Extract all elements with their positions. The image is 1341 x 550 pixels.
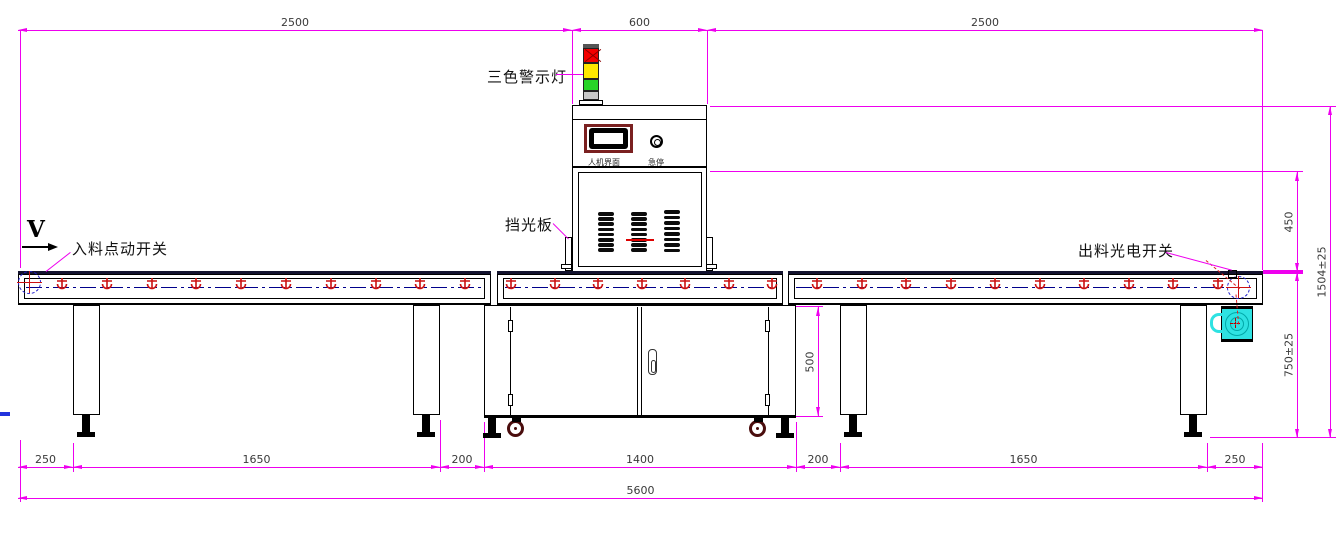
extension-line [73,443,74,472]
extension-line [796,416,823,417]
cabinet-foot [483,416,501,438]
dim-value: 250 [35,453,56,466]
door-hinge [508,320,513,332]
conveyor-leg [840,305,867,415]
roller-icon [548,276,562,290]
caster-wheel [507,420,524,437]
extension-line [440,420,441,472]
roller-icon [1122,276,1136,290]
flow-direction-arrow [22,246,50,248]
dim-value: 1400 [626,453,654,466]
roller-icon [145,276,159,290]
heater-red-mark [626,239,654,241]
extension-line [796,306,823,307]
dim-bottom-6: 1650 [840,467,1207,468]
outfeed-switch-label: 出料光电开关 [1078,240,1174,261]
heater-bar [631,222,647,226]
dim-value: 450 [1283,212,1296,233]
heater-bar [598,238,614,242]
flow-direction-symbol: V [27,216,45,243]
dim-bottom-5: 200 [796,467,840,468]
dim-right-750: 750±25 [1297,272,1298,438]
heater-bar [664,216,680,220]
heater-stack [598,212,614,252]
sensor-bracket [1228,270,1237,278]
dim-right-1504: 1504±25 [1330,106,1331,438]
cabinet-door-gap [637,307,638,415]
extension-line [840,443,841,472]
roller-icon [100,276,114,290]
roller-icon [810,276,824,290]
roller-icon [944,276,958,290]
dim-value: 200 [808,453,829,466]
door-hinge [508,394,513,406]
leader-line [46,252,71,272]
roller-icon [1077,276,1091,290]
dim-value: 2500 [281,16,309,29]
heater-bar [631,243,647,247]
roller-icon [504,276,518,290]
roller-icon [1166,276,1180,290]
door-hinge [765,320,770,332]
leader-line [553,223,569,239]
dim-value: 250 [1225,453,1246,466]
heater-bar [664,238,680,242]
heater-bar [664,243,680,247]
roller-icon [369,276,383,290]
dim-total: 5600 [18,498,1263,499]
roller-icon [678,276,692,290]
sensor-cross [29,271,30,293]
dim-bottom-3: 200 [440,467,484,468]
tower-light-red-icon [583,48,599,63]
leveling-foot [1184,415,1202,437]
leader-line [1166,252,1232,271]
dim-value: 750±25 [1283,333,1296,377]
dim-value: 1504±25 [1316,246,1329,297]
conveyor-leg [73,305,100,415]
heater-bar [598,222,614,226]
extension-line [710,171,1303,172]
dim-cabinet-500: 500 [818,307,819,416]
tower-light-label: 三色警示灯 [487,66,567,87]
roller-icon [855,276,869,290]
heater-bar [664,221,680,225]
extension-line [572,30,573,104]
heater-bar [631,228,647,232]
heater-bar [598,248,614,252]
heater-bar [664,227,680,231]
roller-icon [591,276,605,290]
door-handle [648,349,657,375]
dim-right-450: 450 [1297,172,1298,272]
hmi-screen [589,128,628,149]
dim-value: 5600 [627,484,655,497]
caster-wheel [749,420,766,437]
margin-mark [0,412,10,416]
tower-light-yellow-icon [583,63,599,79]
dim-top-right: 2500 [707,30,1263,31]
heater-bar [598,228,614,232]
heater-bar [598,233,614,237]
light-shield-label: 挡光板 [505,214,553,235]
heater-bar [664,232,680,236]
roller-icon [635,276,649,290]
heater-bar [664,249,680,253]
dim-top-center: 600 [572,30,707,31]
roller-icon [234,276,248,290]
machine-head-divider [572,119,707,120]
extension-line [20,440,21,502]
roller-icon [988,276,1002,290]
roller-icon [1211,276,1225,290]
dim-value: 500 [804,351,817,372]
cabinet-foot [776,416,794,438]
infeed-switch-label: 入料点动开关 [72,238,168,259]
extension-line [1262,443,1263,502]
heater-bar [631,212,647,216]
emergency-stop-button [650,135,663,148]
heater-bar [598,243,614,247]
roller-icon [1033,276,1047,290]
heater-stack [631,212,647,252]
extension-line-thick [1263,270,1303,274]
roller-icon [765,276,779,290]
engineering-drawing: 2500 600 2500 250 1650 200 1400 200 1650… [0,0,1341,550]
extension-line [1262,30,1263,270]
heater-bar [598,217,614,221]
dim-bottom-2: 1650 [73,467,440,468]
extension-line [20,30,21,268]
leveling-foot [417,415,435,437]
roller-icon [722,276,736,290]
leader-line [556,74,583,75]
leveling-foot [77,415,95,437]
conveyor-leg [413,305,440,415]
cabinet-door-gap [641,307,642,415]
door-hinge [765,394,770,406]
extension-line [707,30,708,104]
dim-value: 600 [629,16,650,29]
extension-line [1207,443,1208,472]
control-cabinet [484,305,796,418]
roller-icon [279,276,293,290]
roller-icon [55,276,69,290]
dim-value: 1650 [243,453,271,466]
roller-icon [413,276,427,290]
extension-line [1210,437,1336,438]
dim-bottom-4: 1400 [484,467,796,468]
heater-bar [631,248,647,252]
conveyor-leg [1180,305,1207,415]
extension-line [710,106,1336,107]
roller-icon [899,276,913,290]
heater-bar [631,217,647,221]
extension-line [796,422,797,472]
dim-value: 1650 [1010,453,1038,466]
light-shield-foot-right [706,264,717,269]
roller-icon [324,276,338,290]
dim-bottom-7: 250 [1207,467,1263,468]
tower-light-stem [583,91,599,100]
dim-value: 200 [452,453,473,466]
heater-stack [664,210,680,252]
roller-icon [458,276,472,290]
heater-bar [664,210,680,214]
heater-bar [598,212,614,216]
light-shield-foot-left [561,264,572,269]
leveling-foot [844,415,862,437]
dim-value: 2500 [971,16,999,29]
motor-handle [1210,313,1222,333]
roller-icon [189,276,203,290]
dim-bottom-1: 250 [18,467,73,468]
tower-light-green-icon [583,79,599,91]
dim-top-left: 2500 [18,30,572,31]
heater-bar [631,233,647,237]
